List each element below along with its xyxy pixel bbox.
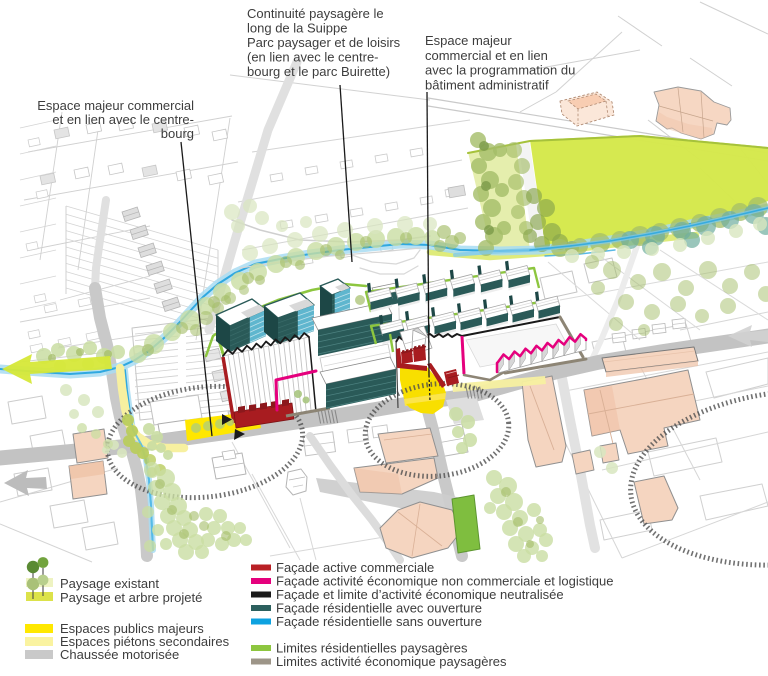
svg-text:commercial et en lien: commercial et en lien: [425, 48, 548, 63]
svg-text:bourg et le parc Buirette): bourg et le parc Buirette): [247, 64, 390, 79]
svg-text:Continuité paysagère le: Continuité paysagère le: [247, 6, 384, 21]
svg-text:Paysage et arbre projeté: Paysage et arbre projeté: [60, 590, 202, 605]
svg-text:et en lien avec le centre-: et en lien avec le centre-: [52, 112, 194, 127]
svg-text:Limites activité économique pa: Limites activité économique paysagères: [276, 654, 507, 669]
svg-text:Façade résidentielle sans ouve: Façade résidentielle sans ouverture: [276, 614, 482, 629]
svg-text:(en lien avec le centre-: (en lien avec le centre-: [247, 50, 379, 65]
svg-text:bâtiment administratif: bâtiment administratif: [425, 77, 549, 92]
svg-text:long de la Suippe: long de la Suippe: [247, 21, 347, 36]
svg-text:Parc paysager et de loisirs: Parc paysager et de loisirs: [247, 35, 401, 50]
svg-text:bourg: bourg: [161, 126, 194, 141]
svg-text:Chaussée motorisée: Chaussée motorisée: [60, 647, 179, 662]
svg-text:Espace majeur: Espace majeur: [425, 33, 512, 48]
svg-text:Espace majeur commercial: Espace majeur commercial: [37, 98, 194, 113]
svg-text:Paysage existant: Paysage existant: [60, 576, 159, 591]
svg-text:avec la programmation du: avec la programmation du: [425, 63, 575, 78]
